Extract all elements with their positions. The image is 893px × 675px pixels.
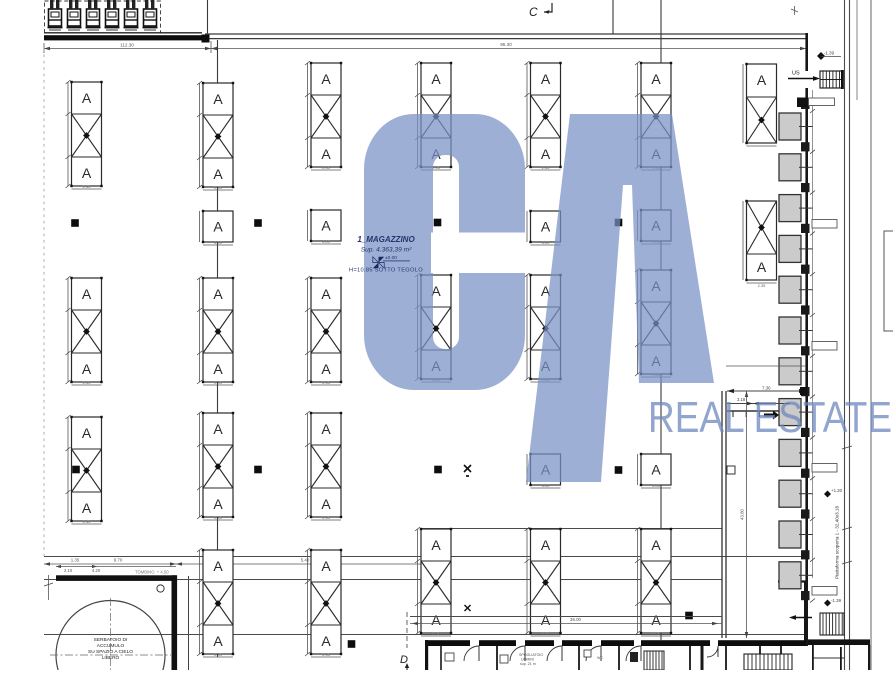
svg-text:REAL ESTATE: REAL ESTATE <box>648 393 892 442</box>
svg-text:±0.00: ±0.00 <box>385 255 397 261</box>
svg-text:H=10,85 SOTTO TEGOLO: H=10,85 SOTTO TEGOLO <box>349 268 423 274</box>
svg-text:1_MAGAZZINO: 1_MAGAZZINO <box>357 235 415 244</box>
svg-text:Sup. 4.363,39 m²: Sup. 4.363,39 m² <box>361 247 412 254</box>
